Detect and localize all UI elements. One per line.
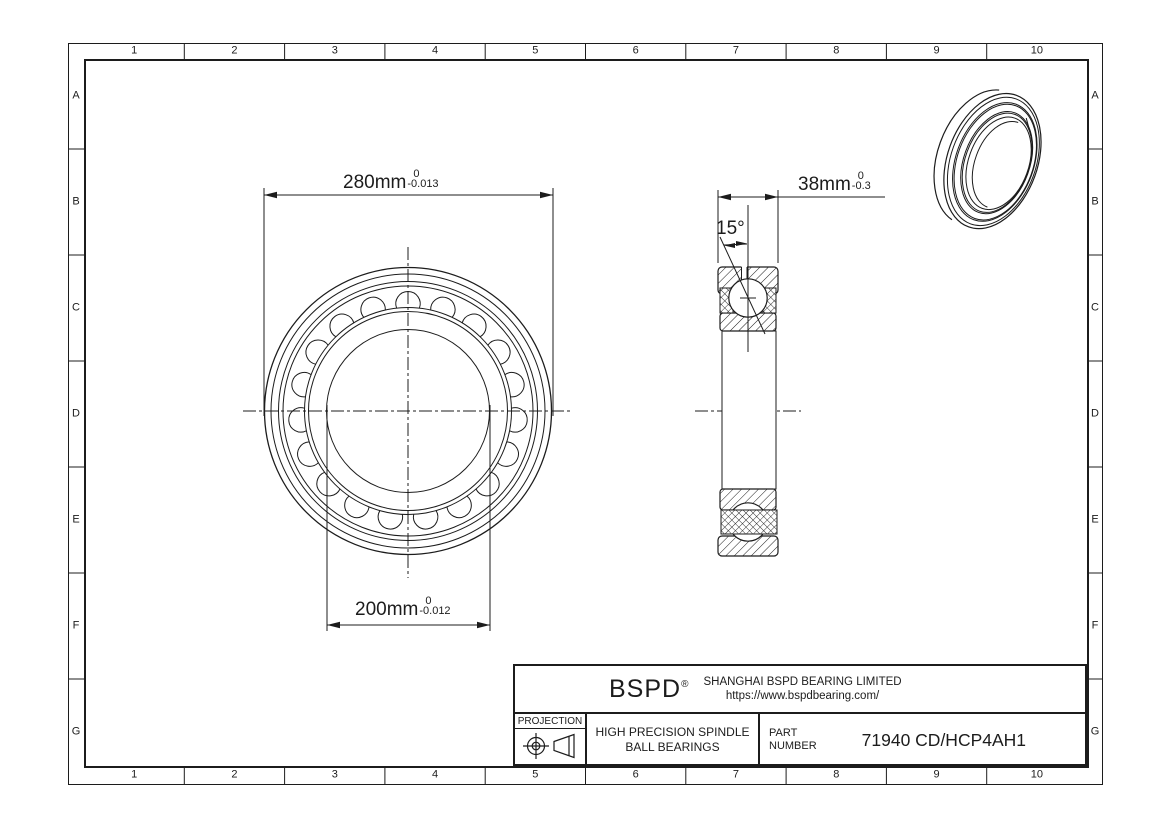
zone-row-label: D [72,409,80,420]
title-block-lower-row: PROJECTION HIGH PRECISION SPINDLE BALL B… [515,714,1085,766]
zone-column-label: 1 [131,770,137,781]
dimension-contact-angle: 15° [716,219,745,239]
zone-column-label: 2 [231,46,237,57]
zone-row-label: G [72,727,81,738]
title-block-header-row: BSPD® SHANGHAI BSPD BEARING LIMITED http… [515,666,1085,714]
dimension-value: 38mm [798,174,851,195]
zone-column-label: 6 [633,770,639,781]
dimension-value: 200mm [355,599,418,620]
zone-column-label: 1 [131,46,137,57]
dimension-value: 280mm [343,172,406,193]
part-number-value: 71940 CD/HCP4AH1 [817,730,1071,751]
product-description-cell: HIGH PRECISION SPINDLE BALL BEARINGS [587,714,760,766]
zone-column-label: 8 [833,46,839,57]
tolerance-stack: 0-0.3 [852,171,871,191]
zone-row-label: A [1091,91,1098,102]
zone-row-label: E [1091,515,1098,526]
zone-column-label: 6 [633,46,639,57]
first-angle-projection-icon [517,729,583,763]
zone-row-label: A [72,91,79,102]
product-line-2: BALL BEARINGS [587,740,758,755]
company-name: SHANGHAI BSPD BEARING LIMITED [703,675,901,689]
zone-column-label: 5 [532,46,538,57]
zone-column-label: 10 [1031,46,1043,57]
zone-row-label: C [72,303,80,314]
zone-row-label: B [1091,197,1098,208]
zone-column-label: 9 [933,770,939,781]
title-block: BSPD® SHANGHAI BSPD BEARING LIMITED http… [513,664,1087,766]
projection-cell: PROJECTION [515,714,587,766]
zone-column-label: 3 [332,46,338,57]
zone-row-label: G [1091,727,1100,738]
zone-column-label: 5 [532,770,538,781]
part-number-cell: PART NUMBER 71940 CD/HCP4AH1 [760,714,1085,766]
zone-column-label: 7 [733,770,739,781]
tolerance-stack: 0-0.013 [407,169,438,189]
zone-row-label: E [72,515,79,526]
brand-logo: BSPD® [609,675,689,704]
zone-column-label: 3 [332,770,338,781]
company-info: SHANGHAI BSPD BEARING LIMITED https://ww… [703,675,901,703]
zone-row-label: D [1091,409,1099,420]
part-number-label: PART NUMBER [769,727,817,753]
product-line-1: HIGH PRECISION SPINDLE [587,725,758,740]
zone-row-label: C [1091,303,1099,314]
zone-column-label: 4 [432,770,438,781]
dimension-outer-diameter: 280mm0-0.013 [343,169,439,193]
zone-column-label: 2 [231,770,237,781]
zone-column-label: 4 [432,46,438,57]
drawing-frame-inner [84,59,1089,768]
zone-column-label: 7 [733,46,739,57]
company-website: https://www.bspdbearing.com/ [703,689,901,703]
zone-column-label: 9 [933,46,939,57]
projection-label: PROJECTION [515,714,585,729]
zone-row-label: B [72,197,79,208]
dimension-bore-diameter: 200mm0-0.012 [355,596,451,620]
zone-row-label: F [1092,621,1099,632]
tolerance-stack: 0-0.012 [419,596,450,616]
zone-column-label: 10 [1031,770,1043,781]
zone-row-label: F [73,621,80,632]
zone-column-label: 8 [833,770,839,781]
dimension-width: 38mm0-0.3 [798,171,871,195]
registered-trademark-icon: ® [681,679,689,690]
